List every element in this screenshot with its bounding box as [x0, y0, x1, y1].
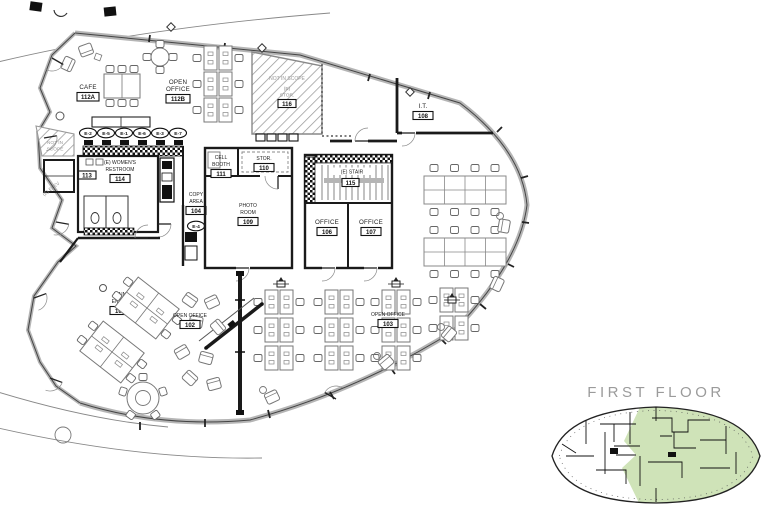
open-office-top-label-line2: OFFICE [166, 86, 190, 93]
copy-area-label-line2: AREA [189, 199, 203, 205]
stair-label: (E) STAIR [341, 170, 364, 176]
restroom-label-line2: RESTROOM [106, 167, 135, 173]
key-plan-title: FIRST FLOOR [587, 384, 724, 401]
copy-area-number: 104 [191, 209, 202, 215]
cell-booth-label-line2: BOOTH [212, 162, 230, 168]
it-room-label: I.T. [418, 103, 427, 110]
restroom-label-line1: (E) WOMEN'S [104, 160, 137, 166]
not-in-scope-center-number: 116 [282, 102, 292, 108]
cell-booth-number: 111 [216, 172, 226, 178]
cell-booth-label-line1: CELL [215, 155, 228, 161]
tag-e7: E-7 [174, 131, 182, 137]
it-room-number: 108 [418, 114, 429, 120]
tag-e2: E-2 [84, 131, 92, 137]
not-in-scope-center-label: NOT IN SCOPE [269, 76, 305, 82]
open-office-south-label: OPEN OFFICE [371, 312, 406, 318]
open-office-south-number: 103 [383, 322, 394, 328]
tag-e1: E-1 [120, 131, 128, 137]
cafe-number: 112A [81, 95, 96, 101]
office-107-number: 107 [366, 230, 377, 236]
open-office-top-number: 112B [171, 97, 186, 103]
office-106-number: 106 [322, 230, 333, 236]
photo-room-number: 109 [243, 220, 254, 226]
cafe-label: CAFE [79, 84, 96, 91]
not-in-scope-left-line2: SCOPE [47, 147, 64, 153]
copy-area-label-line1: COPY [189, 192, 204, 198]
not-in-scope-center-sub2: STOR. [280, 93, 295, 99]
not-in-scope-center: NOT IN SCOPE (E) STOR. 116 [252, 52, 322, 141]
not-in-scope-center-sub1: (E) [284, 86, 291, 92]
office-106-label: OFFICE [315, 219, 339, 226]
tag-e4: E-4 [192, 224, 200, 230]
floor-plan-sheet: NOT IN SCOPE (E) STOR. 116 NOT IN SCOPE … [0, 0, 766, 514]
elevator-number: 113 [82, 173, 92, 179]
restroom-number: 114 [115, 177, 125, 183]
key-plan-highlight-region [622, 407, 762, 505]
tag-e5: E-5 [102, 131, 110, 137]
office-107-label: OFFICE [359, 219, 383, 226]
floor-plan-drawing: NOT IN SCOPE (E) STOR. 116 NOT IN SCOPE … [0, 0, 766, 514]
tag-e6: E-6 [138, 131, 146, 137]
stair-number: 115 [346, 181, 356, 187]
tag-e3: E-3 [156, 131, 164, 137]
photo-room-label-line2: ROOM [240, 210, 256, 216]
open-office-west-number: 102 [185, 323, 196, 329]
storage-label: STOR. [256, 156, 271, 162]
open-office-west-label: OPEN OFFICE [173, 313, 208, 319]
open-office-top-label-line1: OPEN [169, 79, 187, 86]
storage-number: 110 [259, 166, 269, 172]
photo-room-label-line1: PHOTO [239, 203, 257, 209]
key-plan: FIRST FLOOR [548, 384, 764, 507]
